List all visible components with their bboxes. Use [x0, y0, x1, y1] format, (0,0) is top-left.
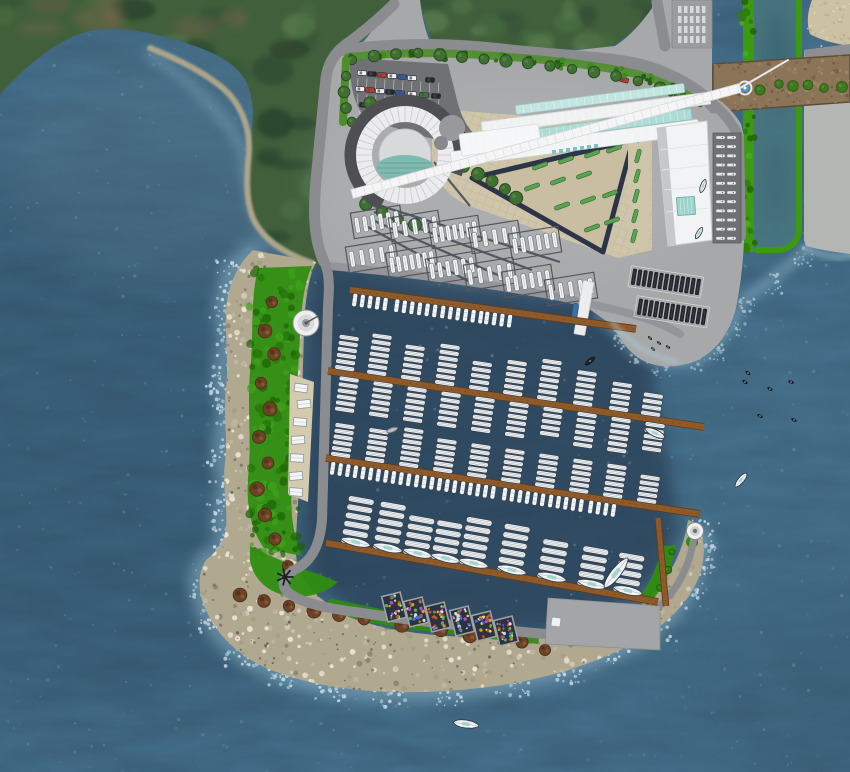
plaza-pad-small: [434, 136, 448, 150]
east-pool: [676, 196, 695, 215]
quay-kiosk: [551, 617, 561, 627]
lighthouse: [687, 523, 704, 540]
canal-shade-2: [764, 140, 788, 224]
quay-platform-south: [545, 598, 660, 650]
marina-site-plan-aerial: [0, 0, 850, 772]
dry-stack-rack: [713, 133, 741, 243]
screenshot-root: [0, 0, 850, 772]
